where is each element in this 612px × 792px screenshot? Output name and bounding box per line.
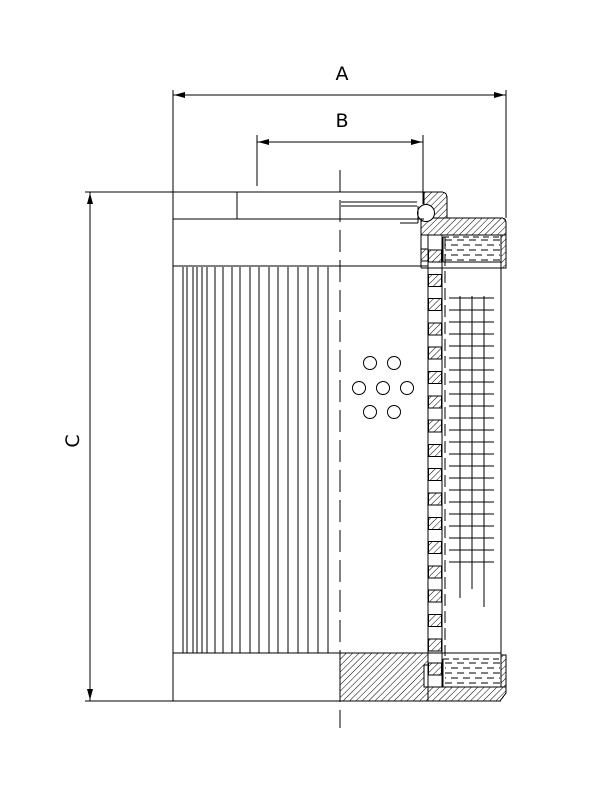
core-tube-perforations [429,250,442,675]
bottom-floor [428,687,506,701]
drawing-page: A B C [0,0,612,792]
support-mesh [449,296,494,607]
bottom-cap-block [340,653,428,701]
perforation-hole-pattern [353,357,414,419]
filter-media-pleats [183,267,328,653]
dim-label-b: B [330,109,354,133]
bottom-right-lip [501,655,506,687]
dim-label-c: C [61,429,85,453]
dim-label-a: A [330,62,354,86]
cap-skirt-band [421,249,428,261]
top-right-lip [501,235,506,268]
outline-and-dimension-lines [85,90,506,701]
top-flange [421,218,506,235]
filter-element-drawing [0,0,612,792]
